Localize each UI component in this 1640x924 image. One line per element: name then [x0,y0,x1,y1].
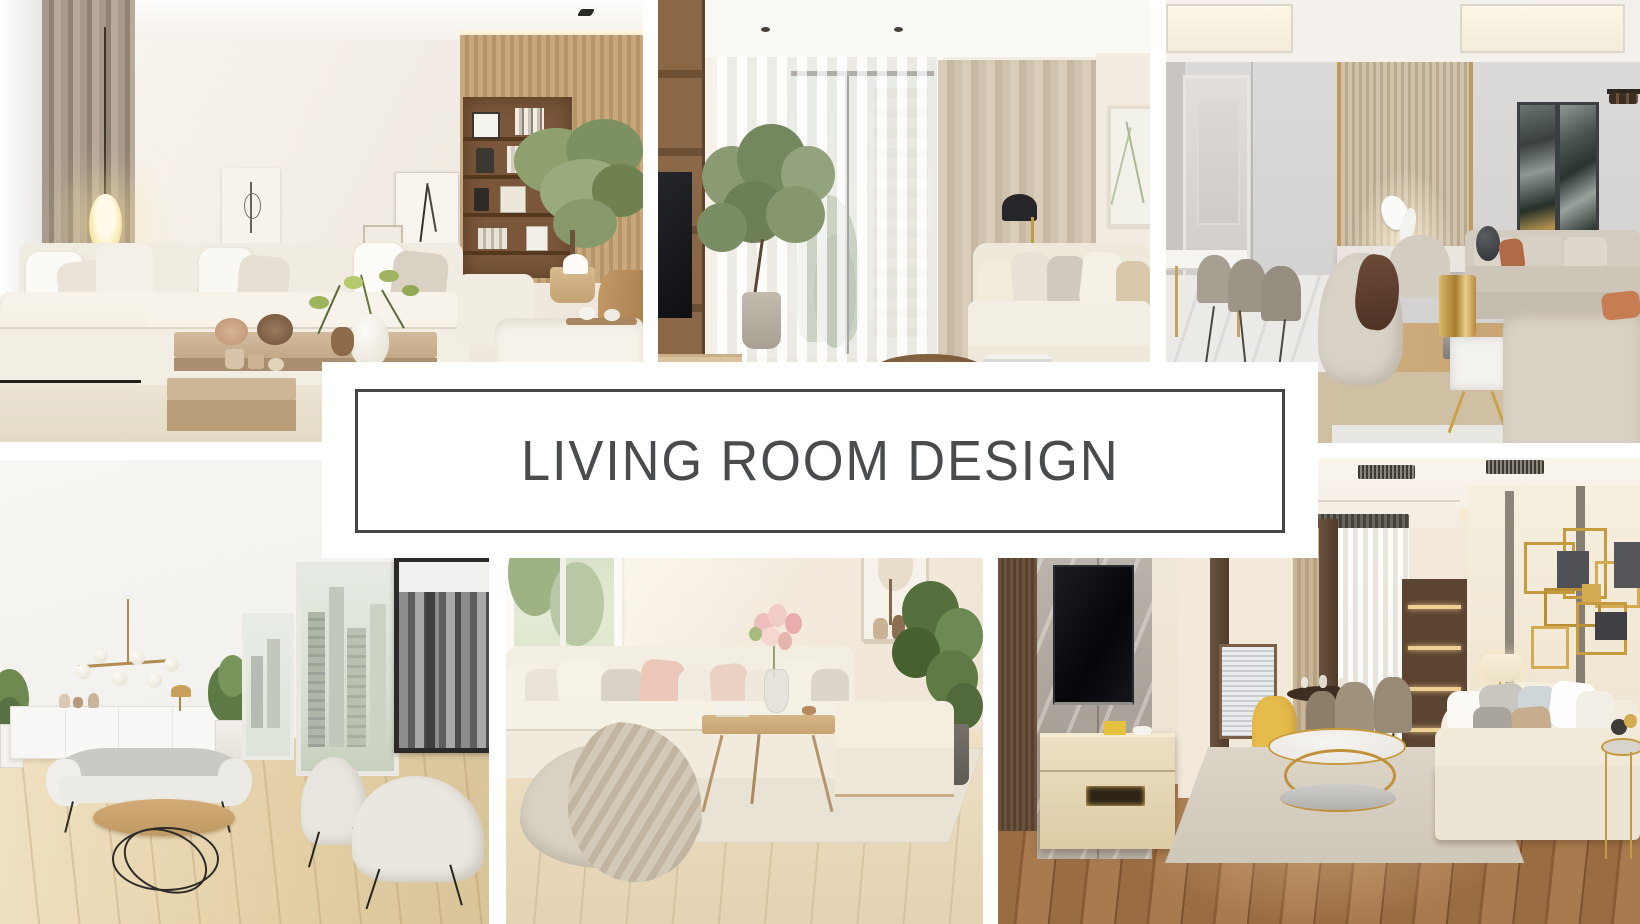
brass-dome-lamp [171,685,191,697]
plant-pot [742,292,781,349]
city-building [329,587,344,746]
table-lamp-shade [1483,654,1522,682]
leaves [402,285,419,296]
jar [248,354,264,369]
brass-table-lamp [1439,275,1477,337]
art-twig [889,579,892,625]
ceiling-light-panel [1460,4,1625,52]
city-building [347,628,366,746]
chandelier-globe [76,664,91,679]
book-stack [716,704,749,717]
window-large [296,562,399,776]
sofa-front [1435,766,1640,841]
art-dark-panel [1614,542,1640,589]
rust-pillow [1601,290,1640,320]
shelf-vase [873,618,887,639]
glass-vase [764,669,790,713]
ac-vent [1358,465,1416,479]
coffee-table-top [174,332,438,359]
city-building [267,639,280,728]
title-banner: LIVING ROOM DESIGN [322,362,1318,558]
white-dish [1133,726,1152,735]
gold-side-table-top [1601,738,1640,756]
wine-glass [1301,677,1309,688]
city-building [251,656,262,728]
cup [802,706,816,715]
ceiling [658,0,1150,57]
yellow-decor [1104,721,1126,735]
tree-foliage [553,199,617,248]
chandelier-stem [127,599,129,664]
pendant-lights [1609,93,1637,104]
dining-chair [1261,266,1301,321]
jar [225,349,244,369]
ac-vent [1486,460,1544,474]
dining-chair [1374,677,1413,733]
frosted-pane [1197,99,1240,225]
decor-ball [257,314,292,345]
chandelier-globe [164,657,179,672]
coffee-table-lower-edge [167,400,296,431]
lamp-stem [179,697,181,711]
vase [474,188,489,212]
banner-border: LIVING ROOM DESIGN [355,389,1285,533]
books [478,228,506,250]
coffee-table-top [702,715,836,734]
art-dark-panel [1595,612,1627,640]
recessed-light [894,27,903,32]
ceiling-light-panel [1166,4,1293,52]
city-building [308,612,325,747]
decor-ball [215,318,247,345]
wine-glass [1319,675,1327,688]
ficus-foliage [697,203,746,252]
art-branch [1110,127,1131,206]
art-gold-block [1582,584,1601,603]
vase-white [350,314,389,367]
wall-art [395,172,458,254]
flower-greens [749,627,761,641]
gold-side-table-leg [1605,752,1607,859]
teapot [563,254,589,274]
window [242,613,294,760]
decor-vase [73,697,83,709]
marble-side-table [1450,337,1507,390]
wall-panel-seam [1251,62,1253,284]
lit-shelf [1408,646,1462,650]
chandelier-globe [130,650,145,665]
pendant-cord [104,27,106,195]
decor-vase [88,693,99,708]
wall-art [222,168,280,248]
outdoor-greenery [550,562,604,646]
tray [566,318,637,325]
decor-vase [59,694,71,708]
art-building-dark [426,592,435,748]
vase [476,148,493,173]
decor-ball-gold [1624,714,1637,728]
coffee-table-lower-tier [167,378,296,400]
bw-skyline-art [394,557,489,753]
recessed-light [761,27,770,32]
book-stack [500,186,526,213]
books [526,226,548,252]
lit-shelf [1408,687,1462,691]
framed-photo [472,112,500,140]
abstract-art-panel [1517,102,1559,236]
gold-side-table-leg [1630,752,1632,859]
ficus-foliage [766,186,825,243]
art-buildings [399,592,489,748]
drawer-seam [1040,770,1175,772]
leaves [344,276,363,288]
chandelier-globe [93,648,108,663]
table-leg-gold [1175,266,1178,337]
lit-shelf [1408,605,1462,609]
shelf-board [463,251,572,255]
door-seam [65,707,66,758]
art-sketch-leaf [244,193,261,219]
chaise-front [835,748,954,797]
art-branch-line [427,186,437,232]
leaves [379,270,398,282]
console-slot [1086,786,1145,806]
drapes [42,0,135,278]
flower [785,613,802,634]
tv-console [1040,733,1175,849]
collage-canvas: LIVING ROOM DESIGN [0,0,1640,924]
dining-chair [1228,259,1266,312]
ottoman-sofa [1503,310,1640,443]
chandelier-globe [147,673,162,688]
tv-screen [658,172,692,318]
city-building [370,604,387,747]
jar [268,358,283,371]
botanical-art [1108,106,1150,227]
chandelier-globe [112,671,127,686]
wall-mounted-tv [1053,565,1134,705]
gold-art-frame [1531,626,1569,669]
abstract-art-panel [1557,102,1599,236]
art-branch [1126,121,1145,202]
cup [604,309,619,320]
banner-title: LIVING ROOM DESIGN [521,433,1119,490]
vase-brown [331,327,354,356]
